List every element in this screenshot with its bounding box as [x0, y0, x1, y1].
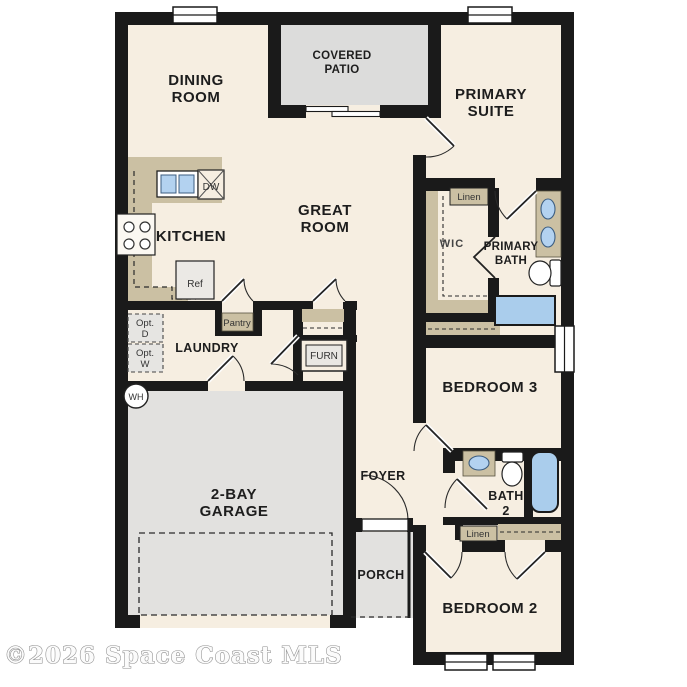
toilet-icon-bath2	[502, 462, 522, 486]
porch-label: PORCH	[357, 568, 404, 582]
covered-patio-label: COVERED	[313, 50, 372, 62]
front-door-leaf	[362, 519, 408, 531]
svg-text:SUITE: SUITE	[468, 103, 515, 120]
window-bedroom3	[555, 326, 574, 372]
window-bedroom2-left	[445, 654, 487, 670]
window-primary	[468, 7, 512, 23]
pantry-label: Pantry	[223, 318, 251, 329]
refrigerator-label: Ref	[187, 279, 203, 290]
toilet-tank-bath2	[502, 452, 523, 462]
svg-text:2: 2	[502, 504, 509, 518]
window-bedroom2-right	[493, 654, 535, 670]
linen-primary-label: Linen	[457, 192, 480, 203]
bedroom2-label: BEDROOM 2	[442, 600, 537, 617]
svg-text:D: D	[142, 329, 149, 340]
svg-text:ROOM: ROOM	[172, 89, 221, 106]
bathtub-icon	[531, 452, 558, 512]
primary-suite-label: PRIMARY	[455, 86, 527, 103]
floor-plan-image: DINING ROOM COVERED PATIO PRIMARY SUITE …	[0, 0, 687, 687]
water-heater-label: WH	[129, 392, 144, 402]
linen-bed2-label: Linen	[466, 529, 489, 540]
wic-label: WIC	[440, 238, 464, 250]
mls-watermark: ©2026 Space Coast MLS	[4, 642, 343, 669]
laundry-label: LAUNDRY	[175, 341, 239, 355]
dining-room-label: DINING	[168, 72, 224, 89]
garage-label: 2-BAY	[211, 486, 257, 503]
svg-text:BATH: BATH	[495, 255, 527, 267]
bedroom3-label: BEDROOM 3	[442, 379, 537, 396]
sliding-glass-door	[306, 105, 380, 118]
foyer-label: FOYER	[360, 469, 405, 483]
svg-text:ROOM: ROOM	[301, 219, 350, 236]
dishwasher-label: DW	[203, 182, 220, 193]
shower-icon	[495, 296, 555, 325]
range-icon	[117, 214, 155, 255]
toilet-tank-primary	[550, 260, 561, 286]
bath2-label: BATH	[488, 489, 523, 503]
svg-text:W: W	[141, 359, 150, 370]
kitchen-label: KITCHEN	[156, 228, 226, 245]
coat-closet-shelf	[302, 309, 344, 322]
primary-bath-label: PRIMARY	[484, 241, 539, 253]
great-room-label: GREAT	[298, 202, 352, 219]
svg-text:PATIO: PATIO	[325, 64, 360, 76]
furnace-label: FURN	[310, 351, 338, 362]
toilet-icon-primary	[529, 261, 551, 285]
wic-shelf-left	[426, 191, 438, 313]
wic-shelf-bottom	[426, 300, 488, 313]
opt-washer-label: Opt.	[136, 348, 154, 359]
opt-dryer-label: Opt.	[136, 318, 154, 329]
svg-text:GARAGE: GARAGE	[200, 503, 269, 520]
floor-plan-drawing: DINING ROOM COVERED PATIO PRIMARY SUITE …	[0, 0, 687, 687]
window-dining	[173, 7, 217, 23]
